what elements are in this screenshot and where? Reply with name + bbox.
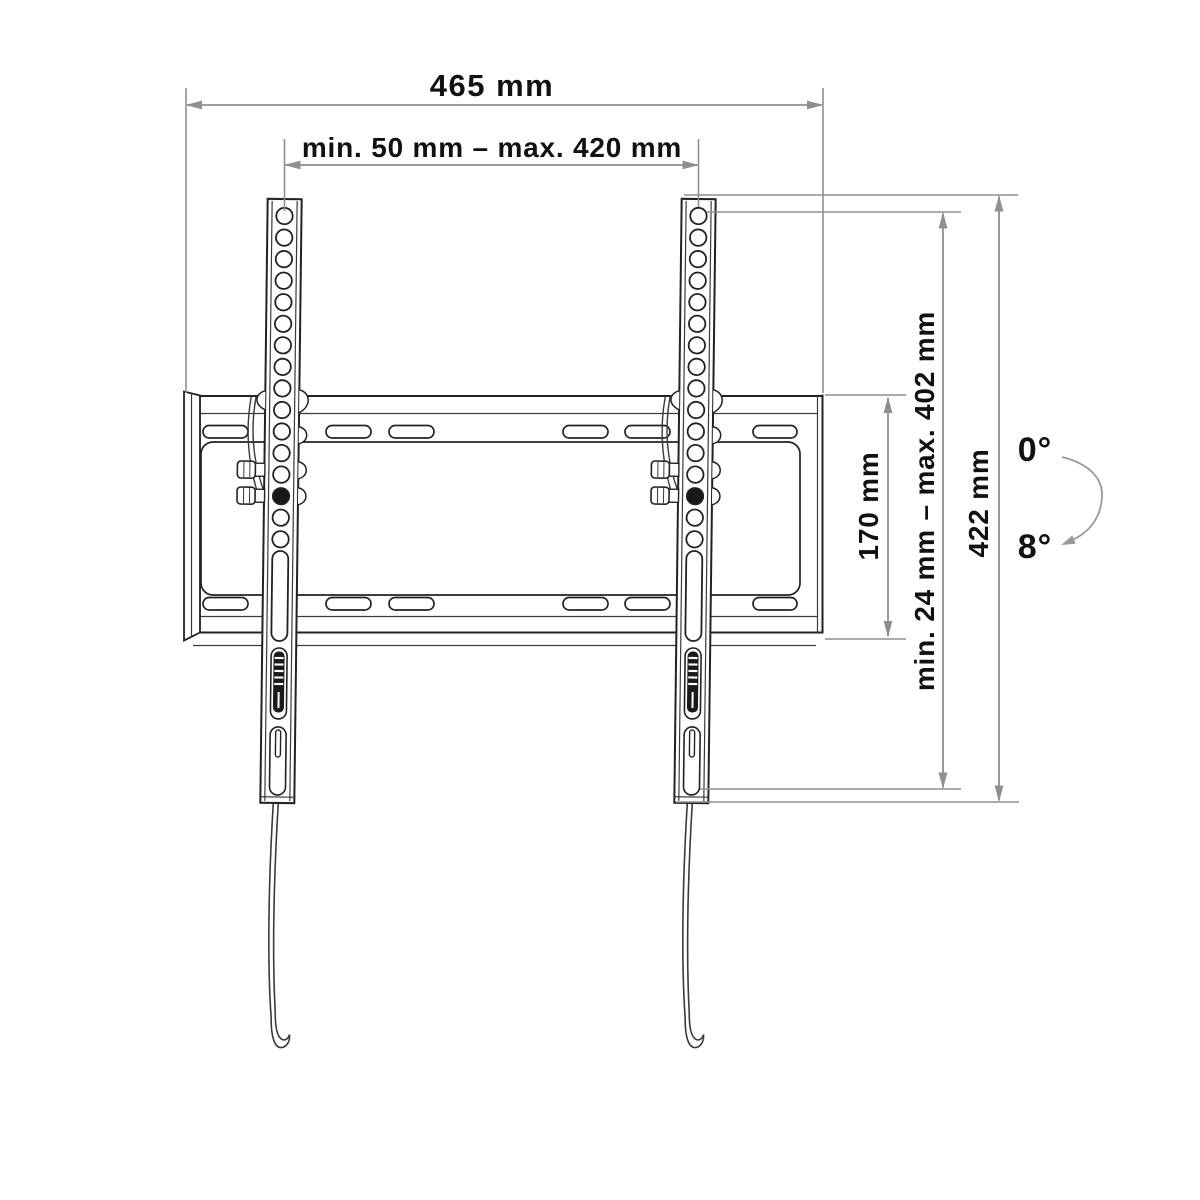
label-tilt-max: 8° [1018, 528, 1053, 566]
label-horizontal-range: min. 50 mm – max. 420 mm [302, 132, 682, 163]
tilt-arrowhead [1061, 536, 1076, 546]
tilt-indicator [1061, 457, 1102, 545]
label-vertical-range: min. 24 mm – max. 402 mm [909, 311, 940, 691]
diagram-page: 465 mm min. 50 mm – max. 420 mm 170 mm m… [0, 0, 1200, 1200]
label-rail-height: 422 mm [963, 448, 994, 557]
label-tilt-min: 0° [1018, 431, 1053, 469]
tilt-arc [1062, 457, 1102, 541]
label-total-width: 465 mm [430, 68, 554, 103]
left-rail-assembly [230, 198, 310, 1047]
right-rail-assembly [644, 198, 724, 1047]
mount-dimension-diagram: 465 mm min. 50 mm – max. 420 mm 170 mm m… [0, 0, 1200, 1200]
label-plate-height: 170 mm [853, 451, 884, 560]
